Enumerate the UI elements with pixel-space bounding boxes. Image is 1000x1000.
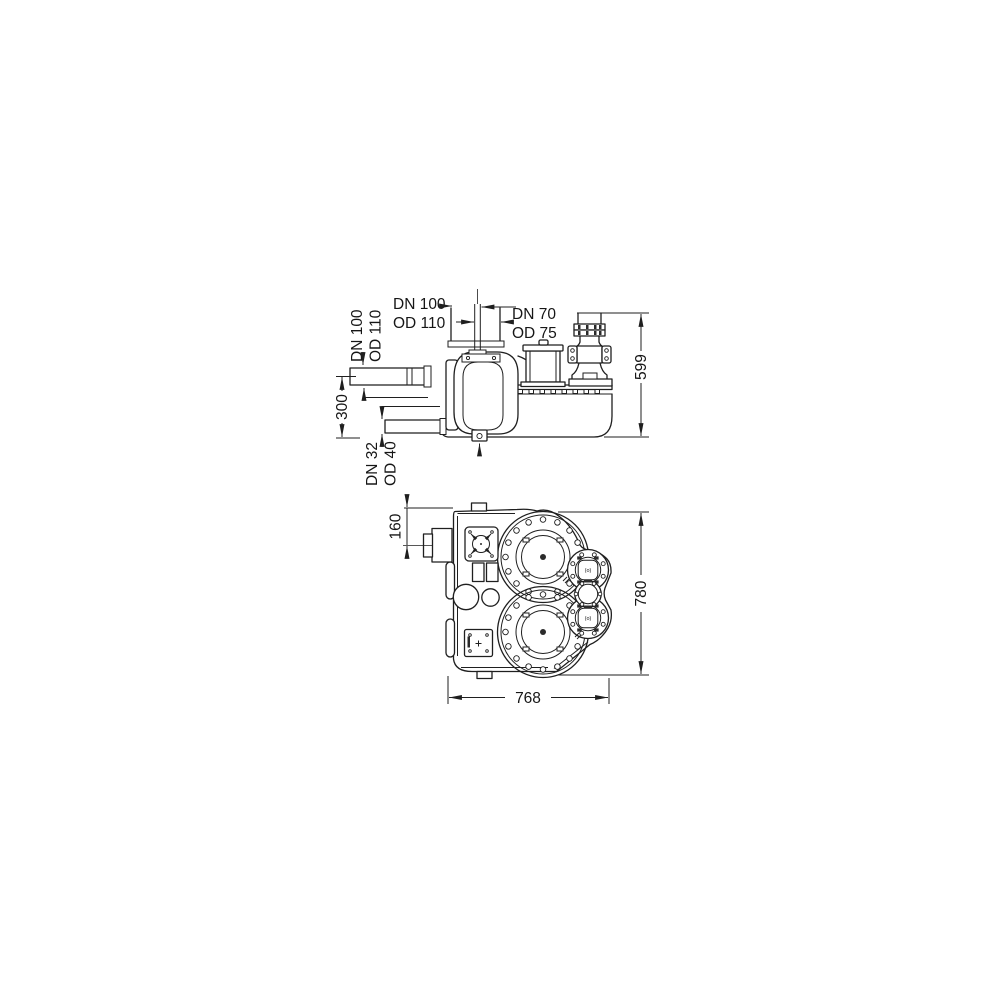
drawing-page: DN 100 OD 110 DN 70 OD 75 DN 100 OD 110 …	[0, 0, 1000, 1000]
dim-label-vent-line1: DN 70	[512, 306, 556, 323]
inlet-pipe-upper-dn100	[350, 366, 431, 387]
page-background	[0, 0, 1000, 1000]
dim-text-total-height: 599	[633, 354, 650, 380]
technical-drawing-canvas: DN 100 OD 110 DN 70 OD 75 DN 100 OD 110 …	[0, 0, 1000, 1000]
dim-label-inlet-top-line2: OD 110	[393, 315, 446, 332]
leveling-plate	[465, 630, 493, 657]
tank-rim-bolts	[507, 390, 600, 394]
dim-label-outlet-line1: DN 32	[364, 442, 381, 486]
dim-label-outlet-line2: OD 40	[383, 441, 400, 486]
dim-text-total-depth: 780	[633, 580, 650, 606]
valve-body	[577, 346, 602, 363]
mounting-plate	[465, 527, 498, 561]
pump-cover-mark-bottom: (o)	[585, 616, 592, 622]
dim-label-vent-line2: OD 75	[512, 325, 557, 342]
control-box	[521, 340, 565, 387]
dim-text-total-width: 768	[515, 690, 541, 707]
dim-label-inlet-left-line2: OD 110	[368, 309, 385, 362]
dim-label-inlet-top-line1: DN 100	[393, 296, 446, 313]
plan-bottom-tab	[477, 672, 492, 679]
pump-cover-mark-top: (o)	[585, 568, 592, 574]
inlet-pipe-lower-dn32	[385, 419, 446, 435]
discharge-base-flange	[569, 379, 612, 386]
plan-top-tab	[472, 503, 487, 511]
plan-left-bump-lower	[446, 619, 455, 657]
dim-text-stub-offset: 160	[388, 513, 405, 539]
pump-volute	[454, 352, 518, 434]
dim-text-inlet-height: 300	[334, 394, 351, 420]
